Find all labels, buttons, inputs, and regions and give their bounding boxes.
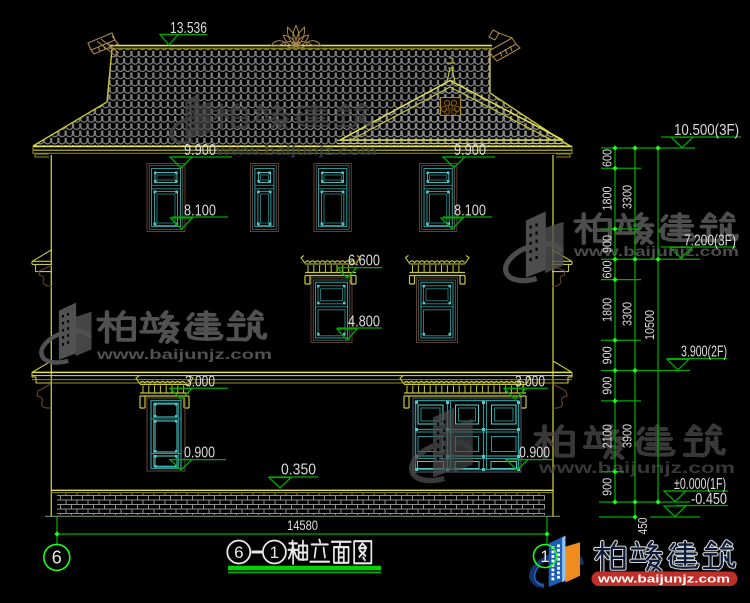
svg-text:www.baijunjz.com: www.baijunjz.com [96,346,272,362]
svg-text:1: 1 [540,547,549,566]
svg-text:8.100: 8.100 [454,203,486,220]
svg-text:0.350: 0.350 [281,462,316,479]
svg-text:www.baijunjz.com: www.baijunjz.com [215,143,377,158]
svg-text:3.900(2F): 3.900(2F) [681,344,727,361]
svg-text:450: 450 [636,517,650,534]
svg-text:600: 600 [601,260,615,278]
svg-text:10.500(3F): 10.500(3F) [674,122,739,139]
svg-text:6: 6 [234,543,243,562]
svg-text:7.200(3F): 7.200(3F) [684,233,736,250]
svg-text:900: 900 [601,478,615,496]
svg-text:900: 900 [601,346,615,364]
svg-text:3.000: 3.000 [515,374,545,391]
svg-text:13.536: 13.536 [170,20,207,37]
svg-text:9.900: 9.900 [454,142,486,159]
svg-text:600: 600 [601,149,615,167]
svg-text:www.baijunjz.com: www.baijunjz.com [597,574,731,586]
svg-text:4.800: 4.800 [348,314,380,331]
svg-text:3300: 3300 [621,302,635,326]
svg-text:0.900: 0.900 [184,445,215,462]
svg-text:1: 1 [270,543,279,562]
svg-text:1800: 1800 [601,298,615,322]
svg-text:900: 900 [601,235,615,253]
svg-text:-0.450: -0.450 [691,491,727,508]
svg-text:14580: 14580 [287,518,318,533]
svg-text:9.900: 9.900 [184,142,216,159]
svg-text:6.600: 6.600 [348,253,380,270]
svg-text:2100: 2100 [601,424,615,448]
svg-text:3300: 3300 [621,185,635,209]
svg-text:1800: 1800 [601,186,615,210]
svg-text:0.900: 0.900 [519,445,550,462]
svg-text:www.baijunjz.com: www.baijunjz.com [538,460,735,477]
svg-text:10500: 10500 [643,310,657,340]
svg-text:3900: 3900 [621,424,635,448]
svg-text:3.000: 3.000 [185,374,215,391]
svg-text:6: 6 [52,548,62,568]
svg-text:8.100: 8.100 [184,203,216,220]
svg-text:900: 900 [601,377,615,395]
